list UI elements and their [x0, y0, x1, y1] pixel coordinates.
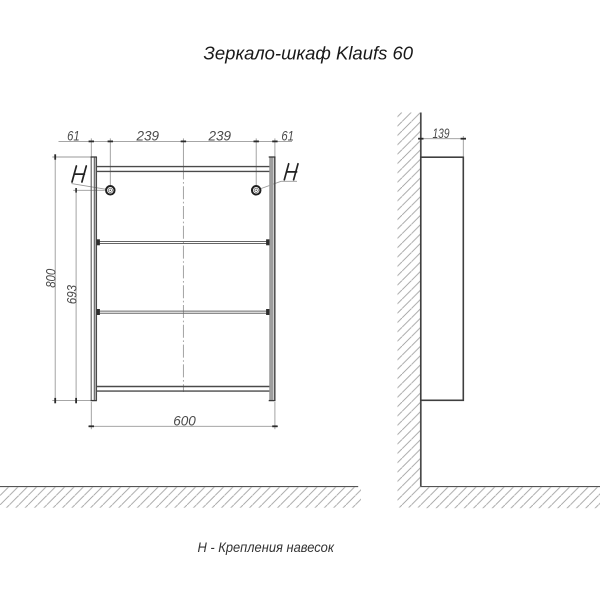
svg-text:Н - Крепления навесок: Н - Крепления навесок — [197, 539, 335, 555]
svg-text:61: 61 — [281, 129, 294, 144]
svg-text:800: 800 — [43, 268, 58, 287]
svg-text:693: 693 — [65, 285, 80, 304]
svg-text:600: 600 — [173, 414, 196, 429]
svg-text:239: 239 — [136, 129, 160, 144]
svg-text:Зеркало-шкаф Klaufs 60: Зеркало-шкаф Klaufs 60 — [204, 42, 414, 63]
svg-text:239: 239 — [208, 129, 232, 144]
svg-text:61: 61 — [67, 129, 80, 144]
